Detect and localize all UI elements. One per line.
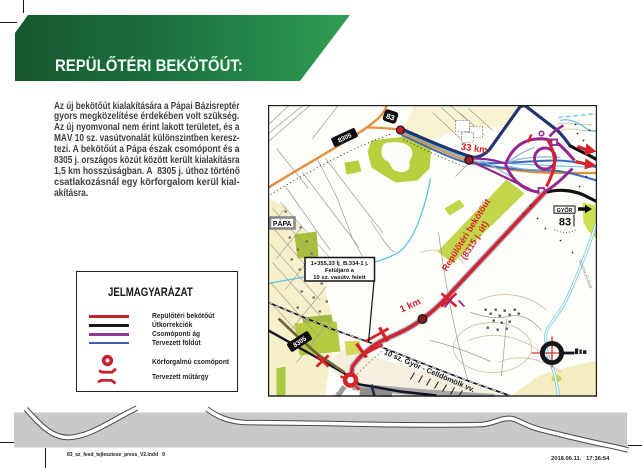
svg-text:10 sz. vasútv. felett: 10 sz. vasútv. felett xyxy=(313,275,365,281)
svg-text:PÁPA: PÁPA xyxy=(272,218,291,227)
svg-text:83: 83 xyxy=(558,216,570,228)
svg-text:Felüljáró a: Felüljáró a xyxy=(325,268,355,274)
svg-text:GYŐR: GYŐR xyxy=(556,206,572,213)
svg-text:1+355,33 Íj_B.334-1 j.: 1+355,33 Íj_B.334-1 j. xyxy=(310,259,368,267)
